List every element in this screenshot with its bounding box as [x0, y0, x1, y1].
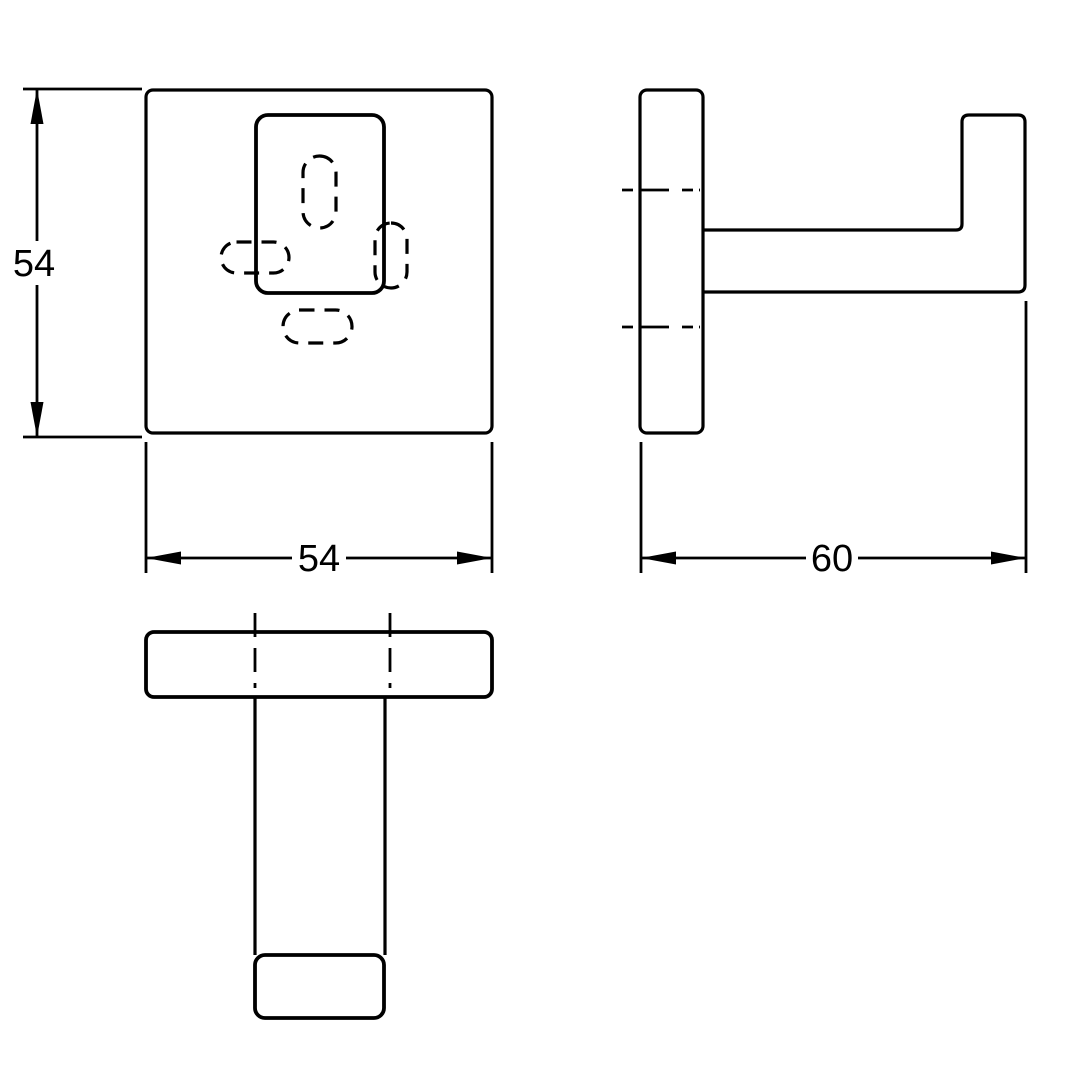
- hidden-slot-right-icon: [375, 223, 407, 288]
- side-wall-plate-outline: [640, 90, 703, 433]
- arrowhead-up: [31, 89, 44, 124]
- front-hook-body-outline: [256, 115, 384, 293]
- dimension-label-height: 54: [13, 243, 55, 285]
- dimension-label-width: 54: [298, 538, 340, 580]
- hidden-slot-bottom-icon: [283, 310, 352, 343]
- technical-drawing-page: 54 54 60: [0, 0, 1080, 1080]
- bottom-hook-tip-outline: [255, 955, 384, 1018]
- hidden-slot-top-icon: [303, 156, 336, 228]
- side-hook-arm-outline: [703, 115, 1025, 292]
- arrowhead-right: [457, 552, 492, 565]
- bottom-view: [146, 613, 492, 1018]
- dimension-front-height: 54: [13, 89, 142, 437]
- front-wall-plate-outline: [146, 90, 492, 433]
- dimension-front-width: 54: [146, 442, 492, 580]
- drawing-canvas: 54 54 60: [0, 0, 1080, 1080]
- dimension-side-depth: 60: [641, 301, 1026, 580]
- dimension-label-depth: 60: [811, 538, 853, 580]
- front-view: [146, 90, 492, 433]
- bottom-wall-plate-outline: [146, 632, 492, 697]
- side-view: [622, 90, 1025, 433]
- arrowhead-left: [641, 552, 676, 565]
- arrowhead-down: [31, 402, 44, 437]
- arrowhead-left: [146, 552, 181, 565]
- arrowhead-right: [991, 552, 1026, 565]
